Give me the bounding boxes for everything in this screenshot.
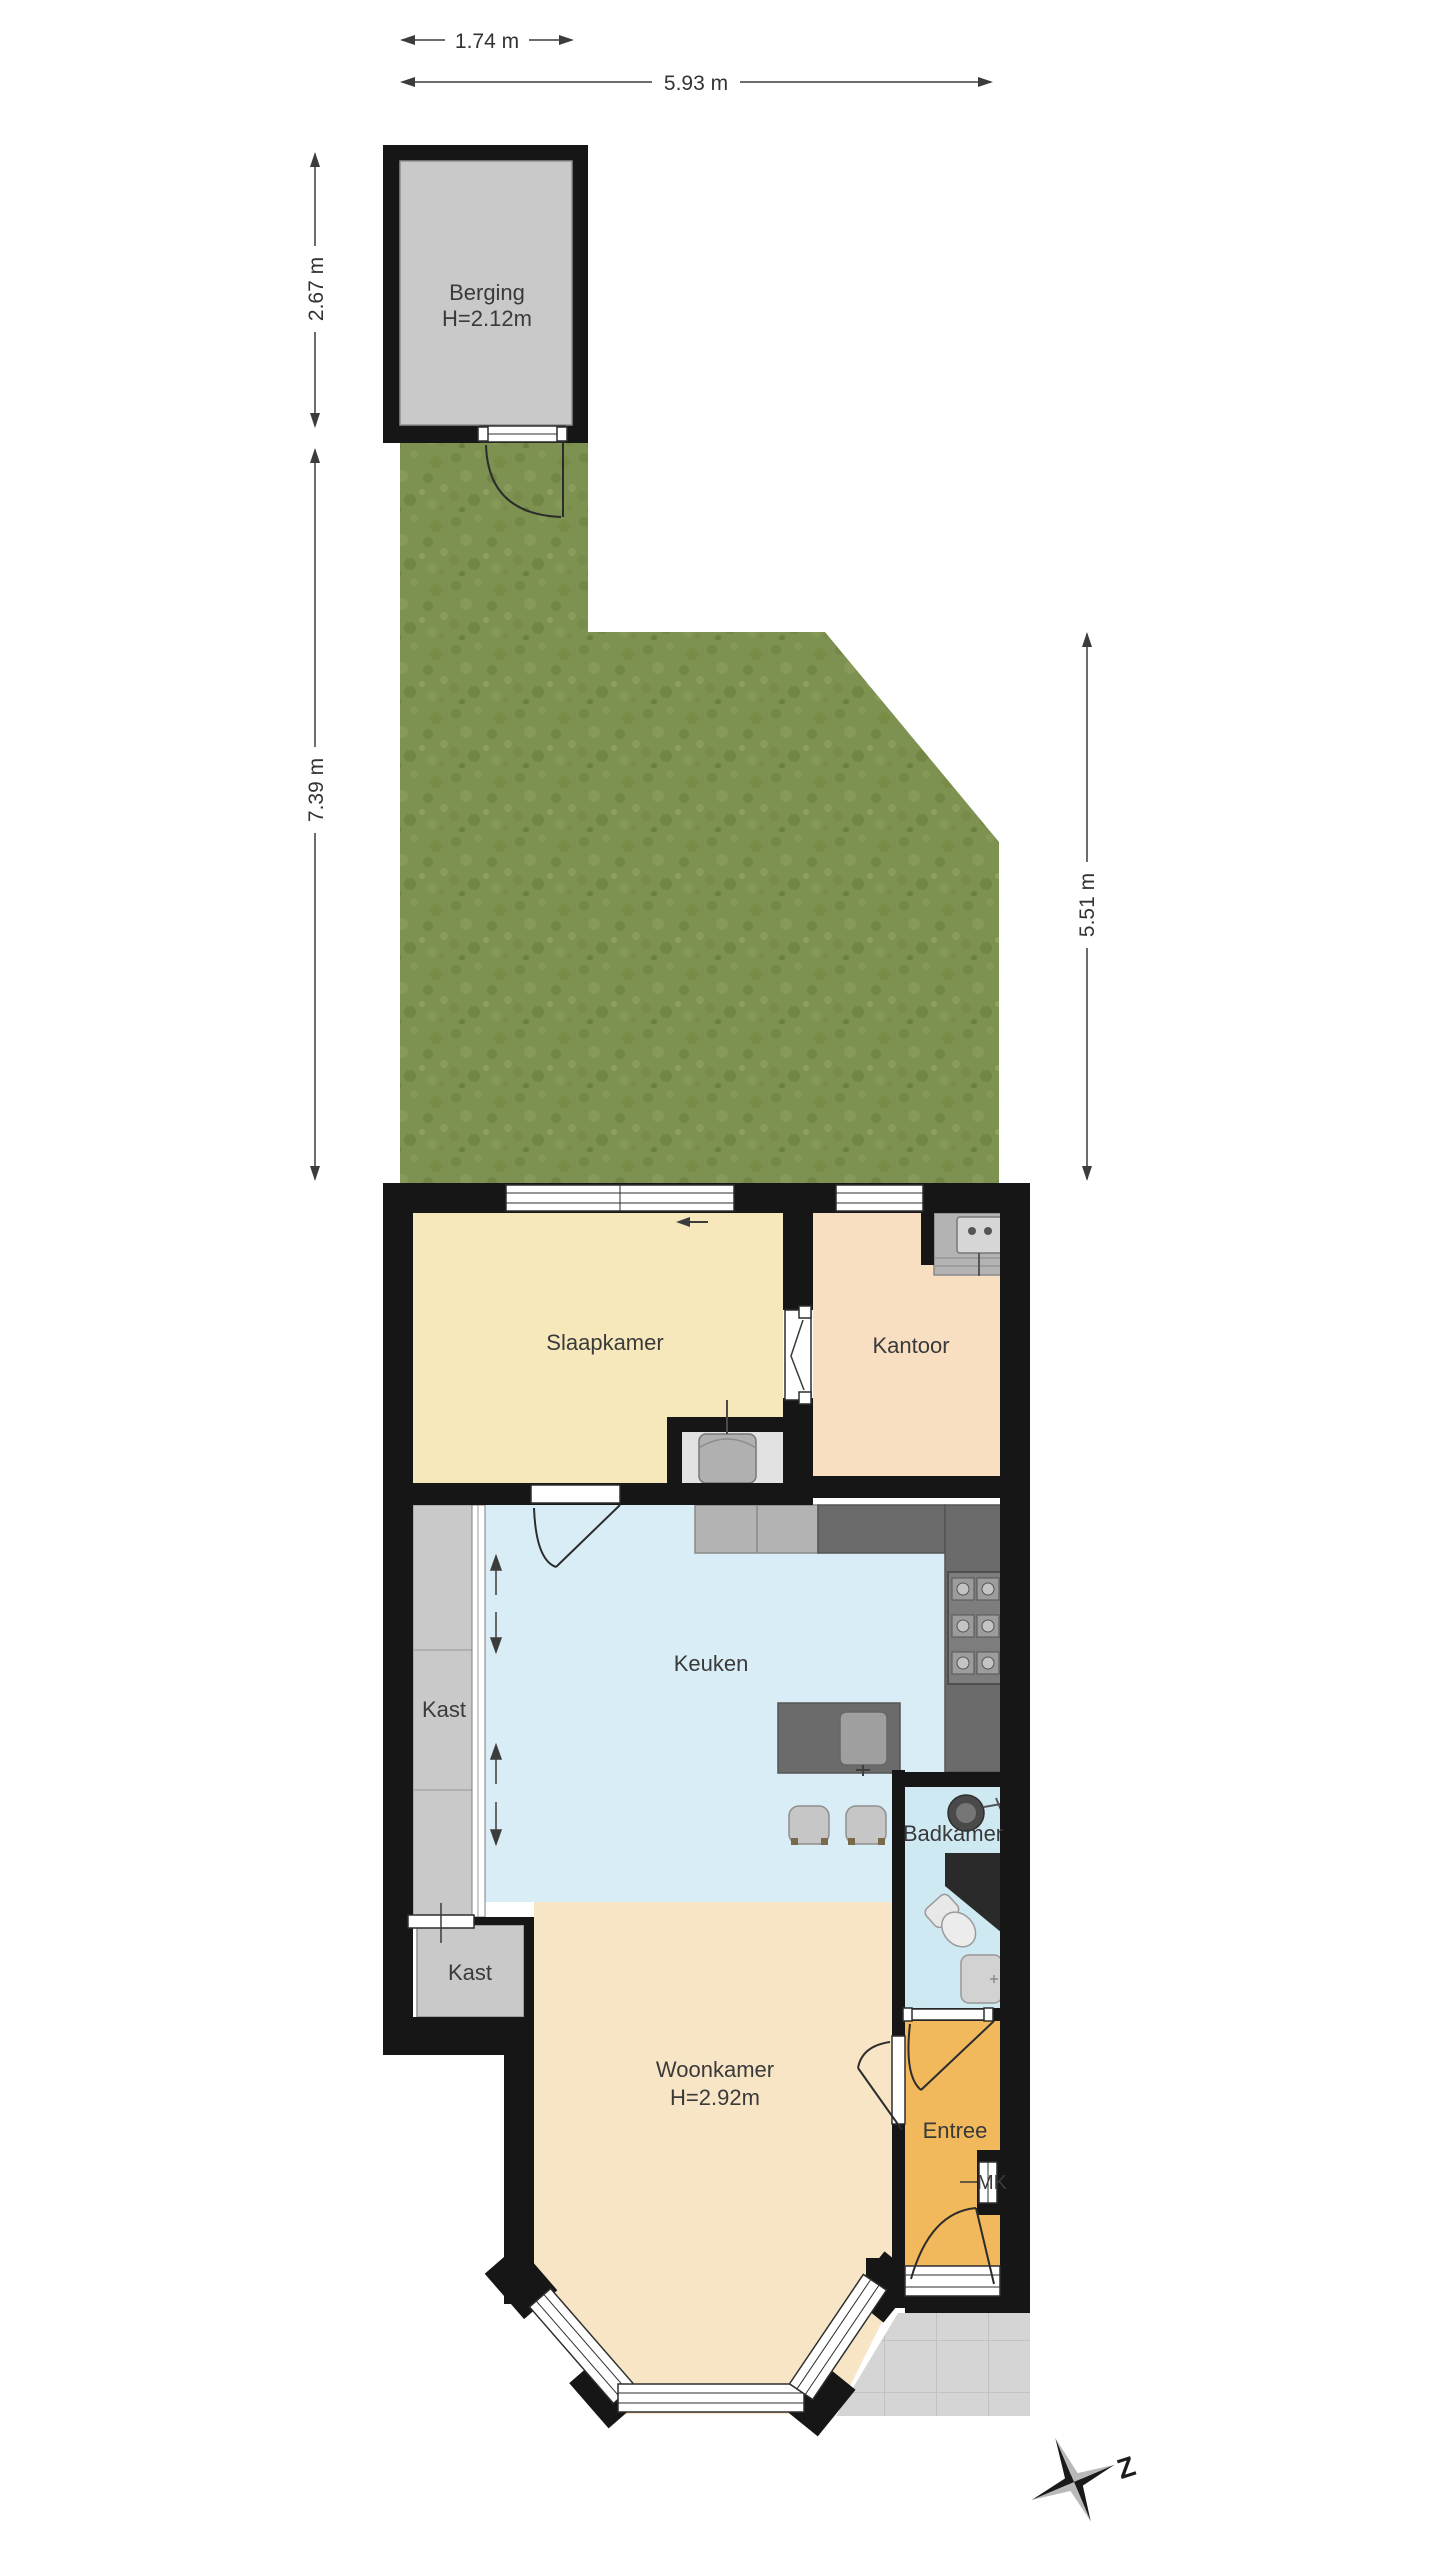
wall-kast-hoek-right xyxy=(524,1917,534,2017)
dimension-berging-width: 1.74 m xyxy=(400,26,574,54)
slaapkamer-window xyxy=(506,1185,734,1211)
dim-label-garden-depth-right: 5.51 m xyxy=(1076,873,1099,937)
stove-icon xyxy=(948,1572,1002,1684)
wall-slaap-kantoor-upper xyxy=(783,1213,813,1310)
wall-entree-bottom xyxy=(905,2296,1030,2313)
compass-south-label: Z xyxy=(1113,2450,1139,2485)
woonkamer-ceiling-label: H=2.92m xyxy=(670,2085,760,2110)
wall-badkamer-left xyxy=(892,1770,905,2022)
wall-badkamer-top xyxy=(892,1772,1002,1787)
floorplan-drawing: 1.74 m 5.93 m 2.67 m 7.39 m 5.51 m xyxy=(0,0,1440,2560)
dimension-garden-depth-left: 7.39 m xyxy=(301,448,329,1181)
dimension-total-width: 5.93 m xyxy=(400,68,993,96)
dimension-berging-depth: 2.67 m xyxy=(301,152,329,428)
berging-ceiling-label: H=2.12m xyxy=(442,306,532,331)
chair-icon xyxy=(846,1806,886,1845)
dim-label-garden-depth-left: 7.39 m xyxy=(305,758,328,822)
garden xyxy=(400,443,999,1183)
wall-right xyxy=(1000,1213,1030,2313)
kantoor-sink-icon xyxy=(957,1217,1002,1253)
woonkamer-label: Woonkamer xyxy=(656,2057,774,2082)
dim-label-berging-depth: 2.67 m xyxy=(305,257,328,321)
badkamer-label: Badkamer xyxy=(903,1821,1003,1846)
sink-icon xyxy=(840,1712,887,1765)
kantoor-window xyxy=(836,1185,923,1211)
chair-icon xyxy=(789,1806,829,1845)
wall-kantoor-bottom xyxy=(813,1476,1030,1498)
boiler-icon xyxy=(699,1434,756,1483)
slaapkamer-label: Slaapkamer xyxy=(546,1330,663,1355)
kast-hal-label: Kast xyxy=(422,1697,466,1722)
entree-label: Entree xyxy=(923,2118,988,2143)
dimension-garden-depth-right: 5.51 m xyxy=(1073,632,1101,1181)
kast-hoek-label: Kast xyxy=(448,1960,492,1985)
dim-label-berging-width: 1.74 m xyxy=(455,30,519,53)
garden-grass xyxy=(400,443,999,1183)
counter-top-dark xyxy=(818,1505,945,1553)
floorplan-page: 1.74 m 5.93 m 2.67 m 7.39 m 5.51 m xyxy=(0,0,1440,2560)
compass: Z xyxy=(1013,2421,1139,2540)
folding-door-slaapkamer-kantoor xyxy=(785,1306,811,1404)
compass-star-icon xyxy=(1013,2421,1131,2540)
bay-window-bottom xyxy=(618,2384,804,2412)
keuken-label: Keuken xyxy=(674,1651,749,1676)
kantoor-label: Kantoor xyxy=(872,1333,949,1358)
meterkast-label: MK xyxy=(977,2172,1008,2194)
entree-floor xyxy=(905,2020,1002,2268)
dim-label-total-width: 5.93 m xyxy=(664,72,728,95)
berging-label: Berging xyxy=(449,280,525,305)
